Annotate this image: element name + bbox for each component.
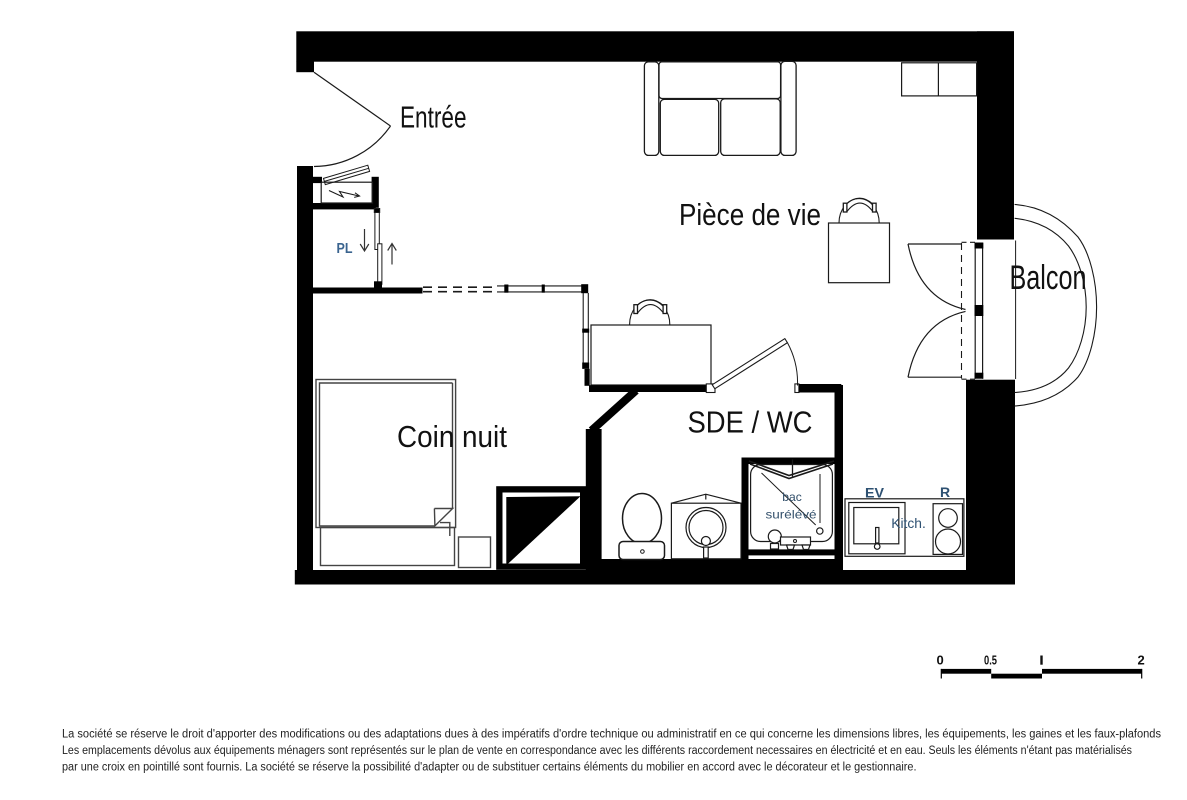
svg-text:R: R bbox=[940, 484, 950, 500]
svg-text:0.5: 0.5 bbox=[984, 653, 997, 668]
svg-text:Balcon: Balcon bbox=[1010, 259, 1087, 297]
svg-text:PL: PL bbox=[337, 240, 353, 257]
svg-text:Entrée: Entrée bbox=[400, 100, 467, 135]
svg-text:2: 2 bbox=[1138, 653, 1145, 668]
svg-text:Coin nuit: Coin nuit bbox=[397, 419, 507, 454]
svg-text:Pièce de vie: Pièce de vie bbox=[679, 197, 821, 232]
svg-text:0: 0 bbox=[937, 653, 944, 668]
svg-text:Kitch.: Kitch. bbox=[891, 515, 926, 531]
svg-text:EV: EV bbox=[865, 485, 885, 501]
svg-text:Les emplacements dévolus aux é: Les emplacements dévolus aux équipements… bbox=[62, 745, 1132, 757]
svg-text:par une croix en pointillé son: par une croix en pointillé sont fournis.… bbox=[62, 761, 917, 773]
svg-text:surélévé: surélévé bbox=[766, 508, 817, 522]
svg-text:bac: bac bbox=[782, 490, 802, 504]
svg-text:SDE / WC: SDE / WC bbox=[688, 405, 813, 440]
svg-text:La société se réserve le droit: La société se réserve le droit d'apporte… bbox=[62, 729, 1161, 741]
